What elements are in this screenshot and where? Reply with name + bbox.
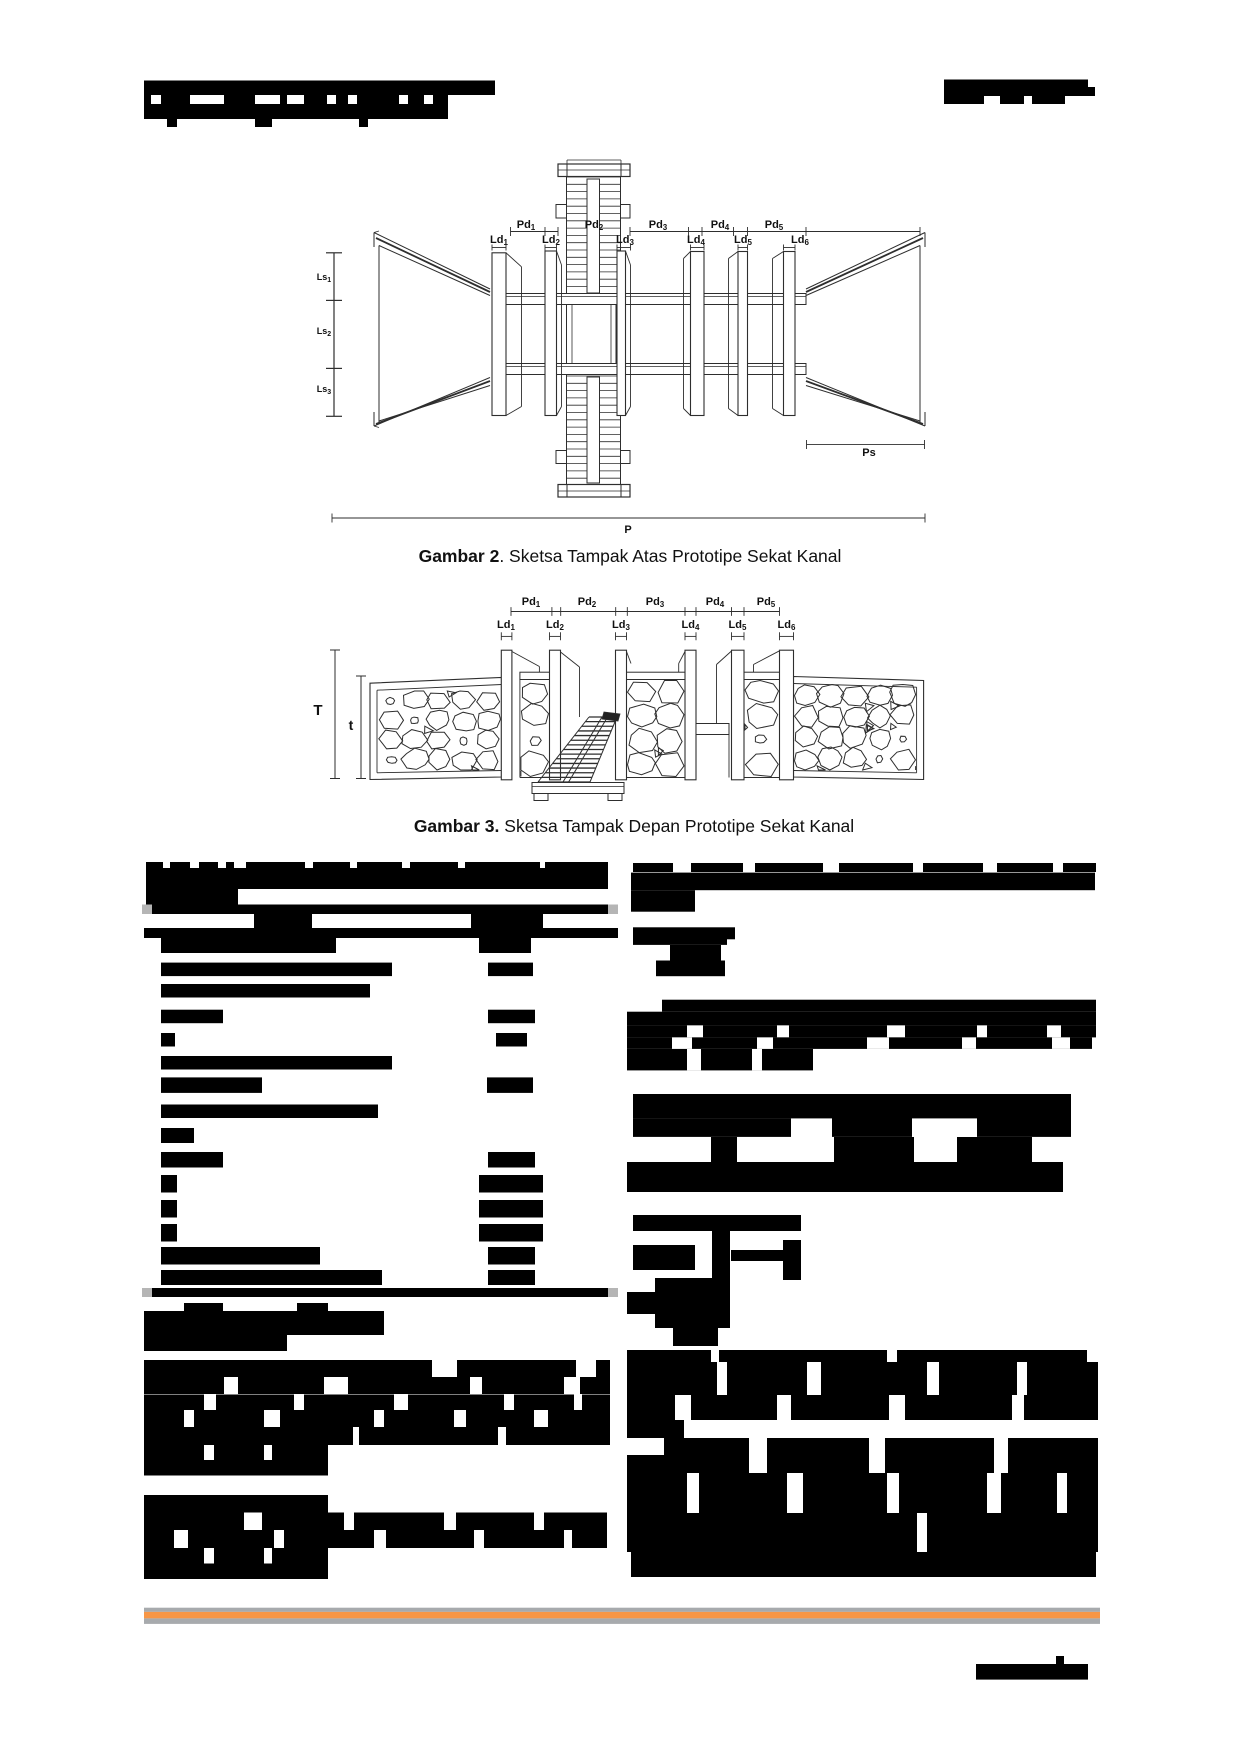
svg-text:Ld4: Ld4 xyxy=(682,619,700,632)
svg-text:Pd2: Pd2 xyxy=(578,596,597,609)
svg-text:Ls2: Ls2 xyxy=(317,326,332,338)
svg-text:Ps: Ps xyxy=(862,447,875,459)
svg-text:Pd1: Pd1 xyxy=(517,219,536,232)
svg-text:P: P xyxy=(624,524,631,536)
svg-text:Pd5: Pd5 xyxy=(765,219,784,232)
svg-text:t: t xyxy=(349,717,354,733)
svg-text:Pd5: Pd5 xyxy=(757,596,776,609)
svg-text:Pd1: Pd1 xyxy=(522,596,541,609)
svg-text:Pd3: Pd3 xyxy=(646,596,665,609)
svg-text:Ld6: Ld6 xyxy=(791,234,809,247)
svg-text:Ls1: Ls1 xyxy=(317,272,332,284)
svg-text:Pd3: Pd3 xyxy=(649,219,668,232)
svg-text:Ld3: Ld3 xyxy=(616,234,634,247)
svg-text:Ld1: Ld1 xyxy=(497,619,515,632)
svg-text:T: T xyxy=(313,702,322,719)
svg-text:Pd4: Pd4 xyxy=(711,219,730,232)
svg-text:Ld5: Ld5 xyxy=(734,234,752,247)
svg-text:Ld2: Ld2 xyxy=(546,619,564,632)
svg-text:Ls3: Ls3 xyxy=(317,384,332,396)
svg-text:Ld3: Ld3 xyxy=(612,619,630,632)
svg-text:Ld6: Ld6 xyxy=(778,619,796,632)
svg-text:Ld4: Ld4 xyxy=(687,234,705,247)
svg-text:Ld5: Ld5 xyxy=(729,619,747,632)
svg-text:Pd4: Pd4 xyxy=(706,596,725,609)
